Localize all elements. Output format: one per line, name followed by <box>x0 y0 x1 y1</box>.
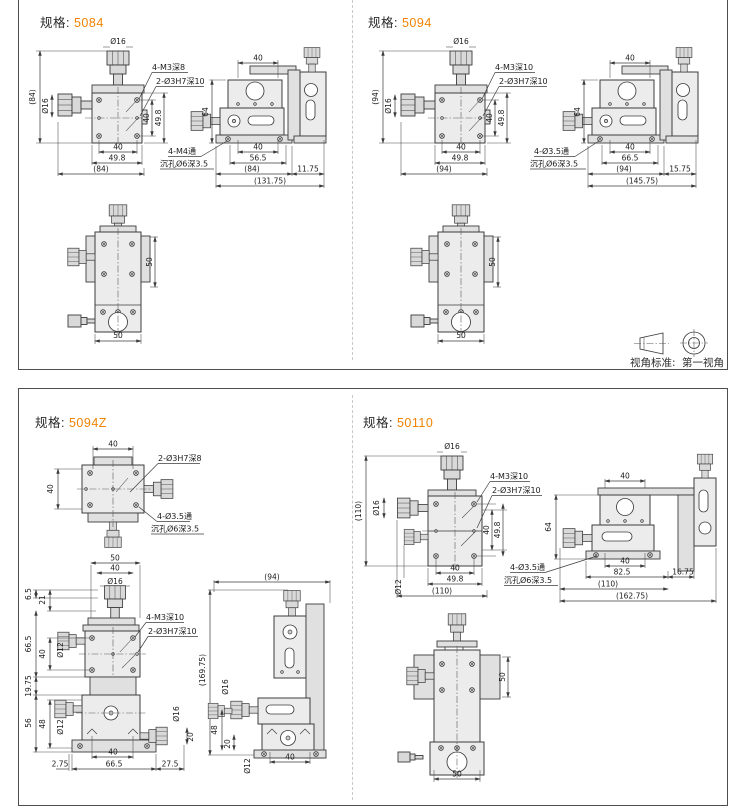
dim-label: (94) <box>264 573 279 582</box>
dim-label: 49.8 <box>109 154 126 163</box>
dim-label: 40 <box>450 564 460 573</box>
dim-label: 19.75 <box>24 675 33 697</box>
dim-label: (110) <box>354 501 363 521</box>
dim-label: 2.75 <box>52 760 69 769</box>
callout-label: 2-Ø3H7深8 <box>158 453 202 463</box>
dim-label: (110) <box>432 587 452 596</box>
callout-label: 沉孔Ø6深3.5 <box>504 575 552 585</box>
dim-label: 50 <box>488 257 497 267</box>
dim-label: 40 <box>625 54 635 63</box>
dim-label: 40 <box>142 113 151 123</box>
diameter-label: Ø16 <box>172 706 181 722</box>
dim-label: 50 <box>456 331 466 340</box>
dim-label: 20 <box>186 732 195 742</box>
dim-label: 40 <box>456 143 466 152</box>
diameter-label: Ø16 <box>107 577 123 586</box>
callout-label: 4-M3深10 <box>146 613 184 622</box>
dim-label: (169.75) <box>198 654 207 686</box>
dim-label: 40 <box>110 564 120 573</box>
dim-label: 40 <box>253 54 263 63</box>
dim-label: (145.75) <box>626 177 658 186</box>
dim-label: (131.75) <box>254 177 286 186</box>
p5094z-side-view: (94) (169.75) Ø16 48 20 Ø12 40 <box>198 573 330 774</box>
diameter-label: Ø16 <box>221 679 230 695</box>
diameter-label: Ø16 <box>372 500 381 516</box>
dim-label: 40 <box>285 753 295 762</box>
p5084-bottom-view: 50 50 <box>68 205 158 344</box>
view-standard-value: 第一视角 <box>682 356 724 369</box>
p5094-front-view: Ø16 (94) Ø16 40 49.8 40 49.8 (94) 4-M3深1… <box>371 37 548 176</box>
dim-label: 15.75 <box>669 165 691 174</box>
view-standard-label: 视角标准: <box>630 356 676 369</box>
dim-label: 64 <box>573 107 582 117</box>
dim-label: 40 <box>38 649 47 659</box>
dim-label: 48 <box>38 719 47 729</box>
dim-label: 40 <box>482 525 491 535</box>
dim-label: 50 <box>110 554 120 563</box>
callout-label: 沉孔Ø6深3.5 <box>151 524 199 534</box>
dim-label: 40 <box>108 440 118 449</box>
p5094-side-view: 40 64 4-Ø3.5通 沉孔Ø6深3.5 40 66.5 (94) 15.7… <box>530 48 698 188</box>
callout-label: 4-M3深10 <box>490 472 528 481</box>
diameter-label: Ø16 <box>41 98 50 114</box>
dim-label: 50 <box>498 672 507 682</box>
dim-label: 49.8 <box>497 109 506 126</box>
dim-label: 21 <box>38 595 47 605</box>
dim-label: (84) <box>93 165 108 174</box>
p50110-side-view: 40 64 4-Ø3.5通 沉孔Ø6深3.5 40 82.5 16.75 (11… <box>504 454 716 603</box>
callout-label: 2-Ø3H7深10 <box>156 76 205 86</box>
dim-label: 40 <box>113 143 123 152</box>
dim-label: 40 <box>620 472 630 481</box>
dim-label: 56.5 <box>250 154 267 163</box>
dim-label: 40 <box>108 748 118 757</box>
diameter-label: Ø16 <box>384 98 393 114</box>
dim-label: 82.5 <box>614 568 631 577</box>
callout-label: 2-Ø3H7深10 <box>499 76 548 86</box>
p50110-bottom-view: 50 50 <box>398 614 511 782</box>
dim-label: 40 <box>625 143 635 152</box>
callout-label: 2-Ø3H7深10 <box>492 485 541 495</box>
dim-label: 50 <box>452 770 462 779</box>
p5094z-top-view: 40 40 2-Ø3H7深8 4-Ø3.5通 沉孔Ø6深3.5 <box>46 440 204 548</box>
diameter-label: Ø12 <box>243 758 252 774</box>
diameter-label: Ø12 <box>56 642 65 658</box>
callout-label: 4-Ø3.5通 <box>510 562 545 572</box>
dim-label: 49.8 <box>493 521 502 538</box>
dim-label: 40 <box>253 143 263 152</box>
dim-label: (162.75) <box>616 592 648 601</box>
dim-label: 66.5 <box>24 635 33 652</box>
p50110-front-view: Ø16 Ø16 Ø12 (110) 4-M3深10 2-Ø3H7深10 40 4… <box>354 442 542 598</box>
dim-label: 49.8 <box>452 154 469 163</box>
dim-label: 6.5 <box>24 588 33 600</box>
callout-label: 4-M4通 <box>168 146 196 156</box>
diameter-label: Ø16 <box>110 37 126 46</box>
diameter-label: Ø16 <box>453 37 469 46</box>
dim-label: 49.8 <box>154 109 163 126</box>
dim-label: 40 <box>620 557 630 566</box>
dim-label: 50 <box>113 331 123 340</box>
dim-label: 20 <box>223 739 232 749</box>
callout-label: 4-M3深10 <box>495 63 533 72</box>
diameter-label: Ø12 <box>56 719 65 735</box>
dim-label: 11.75 <box>297 165 319 174</box>
dim-label: 64 <box>544 522 553 532</box>
dim-label: 27.5 <box>162 760 179 769</box>
dim-label: (94) <box>436 165 451 174</box>
dim-label: (94) <box>616 165 631 174</box>
diameter-label: Ø12 <box>394 579 403 595</box>
callout-label: 沉孔Ø6深3.5 <box>530 159 578 169</box>
technical-drawing-canvas: Ø16 (84) Ø16 40 49.8 40 49.8 (84) 4-M3深8… <box>0 0 750 800</box>
dim-label: 56 <box>24 718 33 728</box>
dim-label: 66.5 <box>622 154 639 163</box>
dim-label: (84) <box>28 89 37 104</box>
callout-label: 4-Ø3.5通 <box>157 511 192 521</box>
callout-label: 4-Ø3.5通 <box>534 146 569 156</box>
dim-label: 16.75 <box>672 568 694 577</box>
catalog-page: { "page": { "spec_label": "规格:", "view_n… <box>0 0 750 800</box>
callout-label: 4-M3深8 <box>152 63 185 72</box>
projection-symbol: 视角标准: 第一视角 <box>630 329 724 369</box>
dim-label: 66.5 <box>106 760 123 769</box>
dim-label: (84) <box>244 165 259 174</box>
callout-label: 2-Ø3H7深10 <box>148 626 197 636</box>
dim-label: 64 <box>201 107 210 117</box>
p5094z-front-view: 50 40 Ø16 6.5 21 66.5 40 Ø12 19.75 56 48… <box>24 554 198 772</box>
dim-label: (94) <box>371 89 380 104</box>
dim-label: 50 <box>145 257 154 267</box>
diameter-label: Ø16 <box>444 442 460 451</box>
p5094-bottom-view: 50 50 <box>411 205 501 344</box>
dim-label: 40 <box>46 484 55 494</box>
dim-label: (110) <box>598 580 618 589</box>
dim-label: 40 <box>485 113 494 123</box>
callout-label: 沉孔Ø6深3.5 <box>160 159 208 169</box>
dim-label: 49.8 <box>447 575 464 584</box>
dim-label: 48 <box>210 725 219 735</box>
